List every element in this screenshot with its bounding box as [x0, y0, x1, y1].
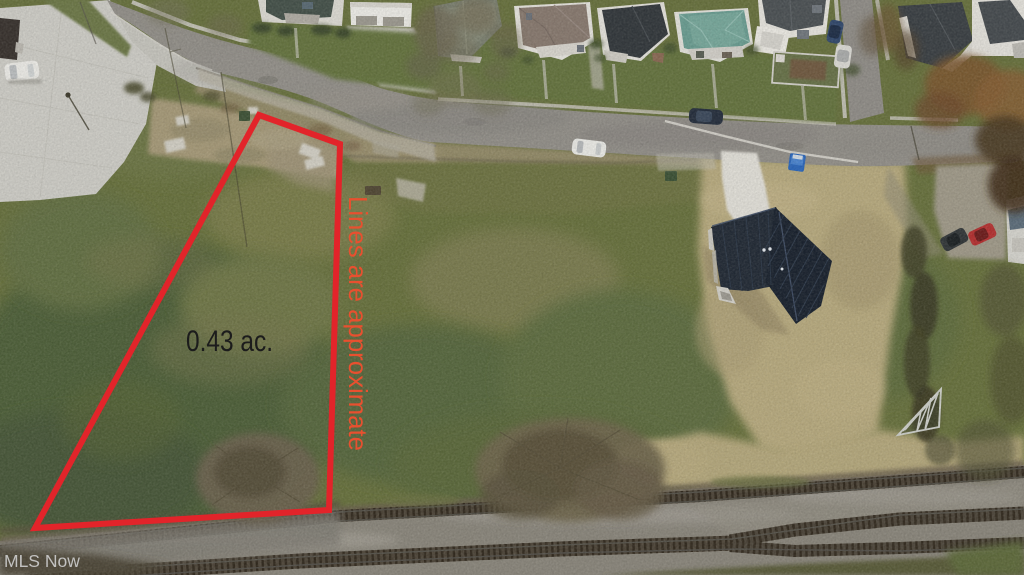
- svg-text:0.43 ac.: 0.43 ac.: [186, 325, 273, 358]
- svg-text:MLS Now: MLS Now: [4, 551, 80, 571]
- svg-text:Lines are approximate: Lines are approximate: [343, 196, 373, 451]
